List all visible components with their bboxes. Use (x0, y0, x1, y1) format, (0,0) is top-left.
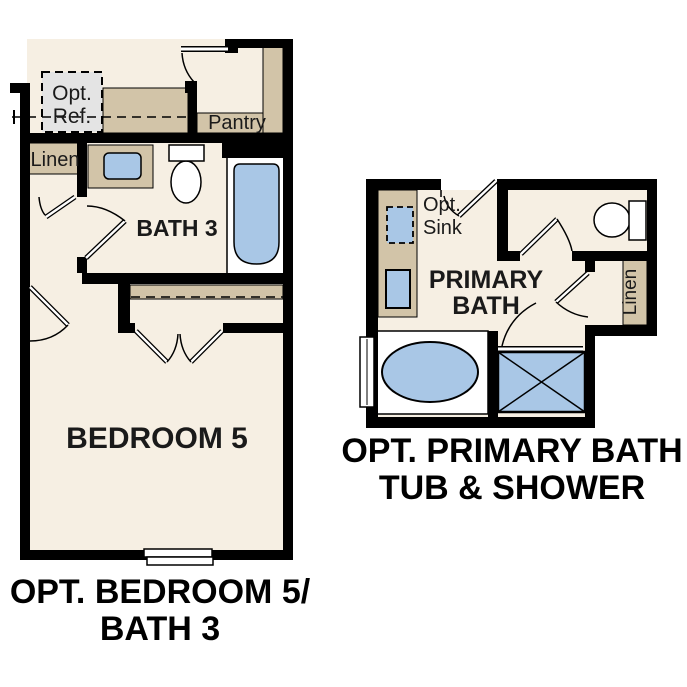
right-plan-caption-line2: TUB & SHOWER (379, 469, 645, 507)
opt-sink-label-line1: Opt. (423, 194, 461, 216)
bedroom5-room-label: BEDROOM 5 (66, 422, 248, 455)
opt-sink-fixture (387, 207, 413, 243)
primary-bath-label-line2: BATH (452, 292, 520, 320)
bathtub-fixture (234, 164, 279, 264)
bedroom-window-sill (147, 557, 213, 565)
bath3-toilet-bowl (171, 161, 201, 203)
wall (20, 83, 30, 560)
left-plan: Opt. Ref. Linen Pantry BATH 3 BEDROOM 5 … (10, 39, 311, 648)
opt-ref-label-line2: Ref. (53, 105, 92, 128)
bedroom-window (144, 549, 212, 557)
wall (82, 273, 293, 284)
wall (497, 179, 657, 190)
wall (283, 39, 293, 560)
wall (222, 143, 283, 158)
primary-linen-label: Linen (620, 269, 641, 316)
wall (585, 336, 595, 428)
wall (572, 251, 657, 261)
kitchen-counter (103, 88, 188, 133)
wall (236, 39, 293, 48)
primary-sink-fixture (386, 270, 410, 308)
bath3-sink-fixture (104, 153, 141, 179)
wall (585, 258, 595, 272)
floorplan-canvas: Opt. Ref. Linen Pantry BATH 3 BEDROOM 5 … (0, 0, 687, 687)
wall (366, 179, 441, 190)
pantry-shelf-right (263, 46, 283, 133)
opt-sink-label-line2: Sink (423, 217, 463, 239)
wall (188, 83, 197, 133)
wall (366, 417, 595, 428)
right-plan: Opt. Sink PRIMARY BATH Linen OPT. PRIMAR… (341, 179, 682, 507)
wall (497, 251, 520, 261)
wall (497, 190, 508, 258)
primary-bath-label-line1: PRIMARY (429, 266, 544, 294)
wall (20, 133, 293, 143)
wall (77, 257, 87, 273)
oval-tub-fixture (382, 342, 478, 402)
pantry-label: Pantry (208, 112, 266, 134)
wall (585, 325, 657, 336)
wall (118, 323, 135, 333)
bath3-room-label: BATH 3 (136, 215, 217, 241)
left-plan-caption-line1: OPT. BEDROOM 5/ (10, 573, 311, 611)
bath3-toilet-tank (169, 145, 204, 161)
wall (223, 323, 283, 333)
left-plan-caption-line2: BATH 3 (100, 610, 220, 648)
linen-label: Linen (31, 149, 80, 171)
wall (488, 331, 498, 417)
floorplan-page: Opt. Ref. Linen Pantry BATH 3 BEDROOM 5 … (0, 0, 687, 687)
opt-ref-label-line1: Opt. (52, 82, 92, 105)
primary-toilet-bowl (594, 203, 630, 237)
primary-toilet-tank (629, 201, 646, 240)
right-plan-caption-line1: OPT. PRIMARY BATH (341, 432, 682, 470)
